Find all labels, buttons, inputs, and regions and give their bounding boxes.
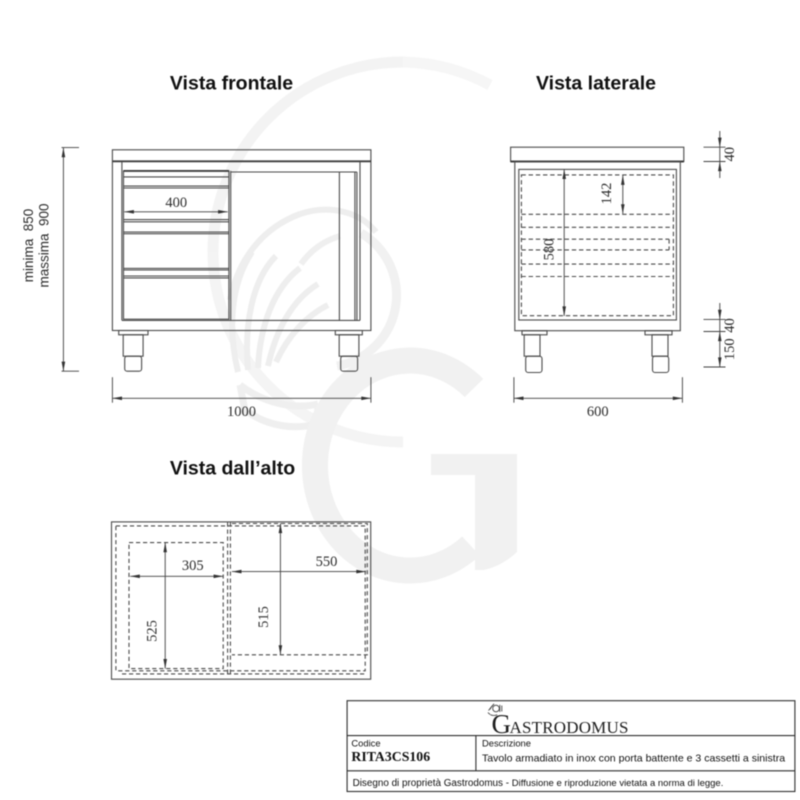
svg-text:142: 142 bbox=[599, 183, 615, 205]
svg-text:600: 600 bbox=[587, 404, 609, 420]
svg-text:minima 850: minima 850 bbox=[21, 209, 36, 283]
svg-text:400: 400 bbox=[165, 195, 187, 211]
svg-text:massima 900: massima 900 bbox=[37, 203, 52, 287]
svg-text:Descrizione: Descrizione bbox=[482, 737, 531, 748]
svg-text:Codice: Codice bbox=[351, 737, 380, 748]
svg-text:Vista dall’alto: Vista dall’alto bbox=[170, 458, 295, 480]
svg-text:580: 580 bbox=[542, 239, 558, 261]
svg-text:Vista laterale: Vista laterale bbox=[536, 73, 656, 95]
svg-text:525: 525 bbox=[145, 620, 161, 642]
svg-text:Vista frontale: Vista frontale bbox=[170, 73, 293, 95]
svg-text:550: 550 bbox=[316, 554, 338, 570]
svg-text:515: 515 bbox=[256, 606, 272, 628]
svg-text:150: 150 bbox=[722, 338, 738, 360]
svg-text:1000: 1000 bbox=[227, 404, 256, 420]
svg-text:Disegno di proprietà Gastrodom: Disegno di proprietà Gastrodomus - Diffu… bbox=[353, 778, 724, 789]
svg-text:40: 40 bbox=[722, 318, 738, 333]
svg-text:305: 305 bbox=[182, 558, 204, 574]
svg-text:40: 40 bbox=[722, 147, 738, 162]
svg-text:RITA3CS106: RITA3CS106 bbox=[351, 749, 430, 764]
svg-text:G: G bbox=[492, 709, 512, 739]
svg-text:Tavolo armadiato in inox con p: Tavolo armadiato in inox con porta batte… bbox=[482, 752, 785, 764]
svg-text:ASTRODOMUS: ASTRODOMUS bbox=[510, 718, 629, 737]
